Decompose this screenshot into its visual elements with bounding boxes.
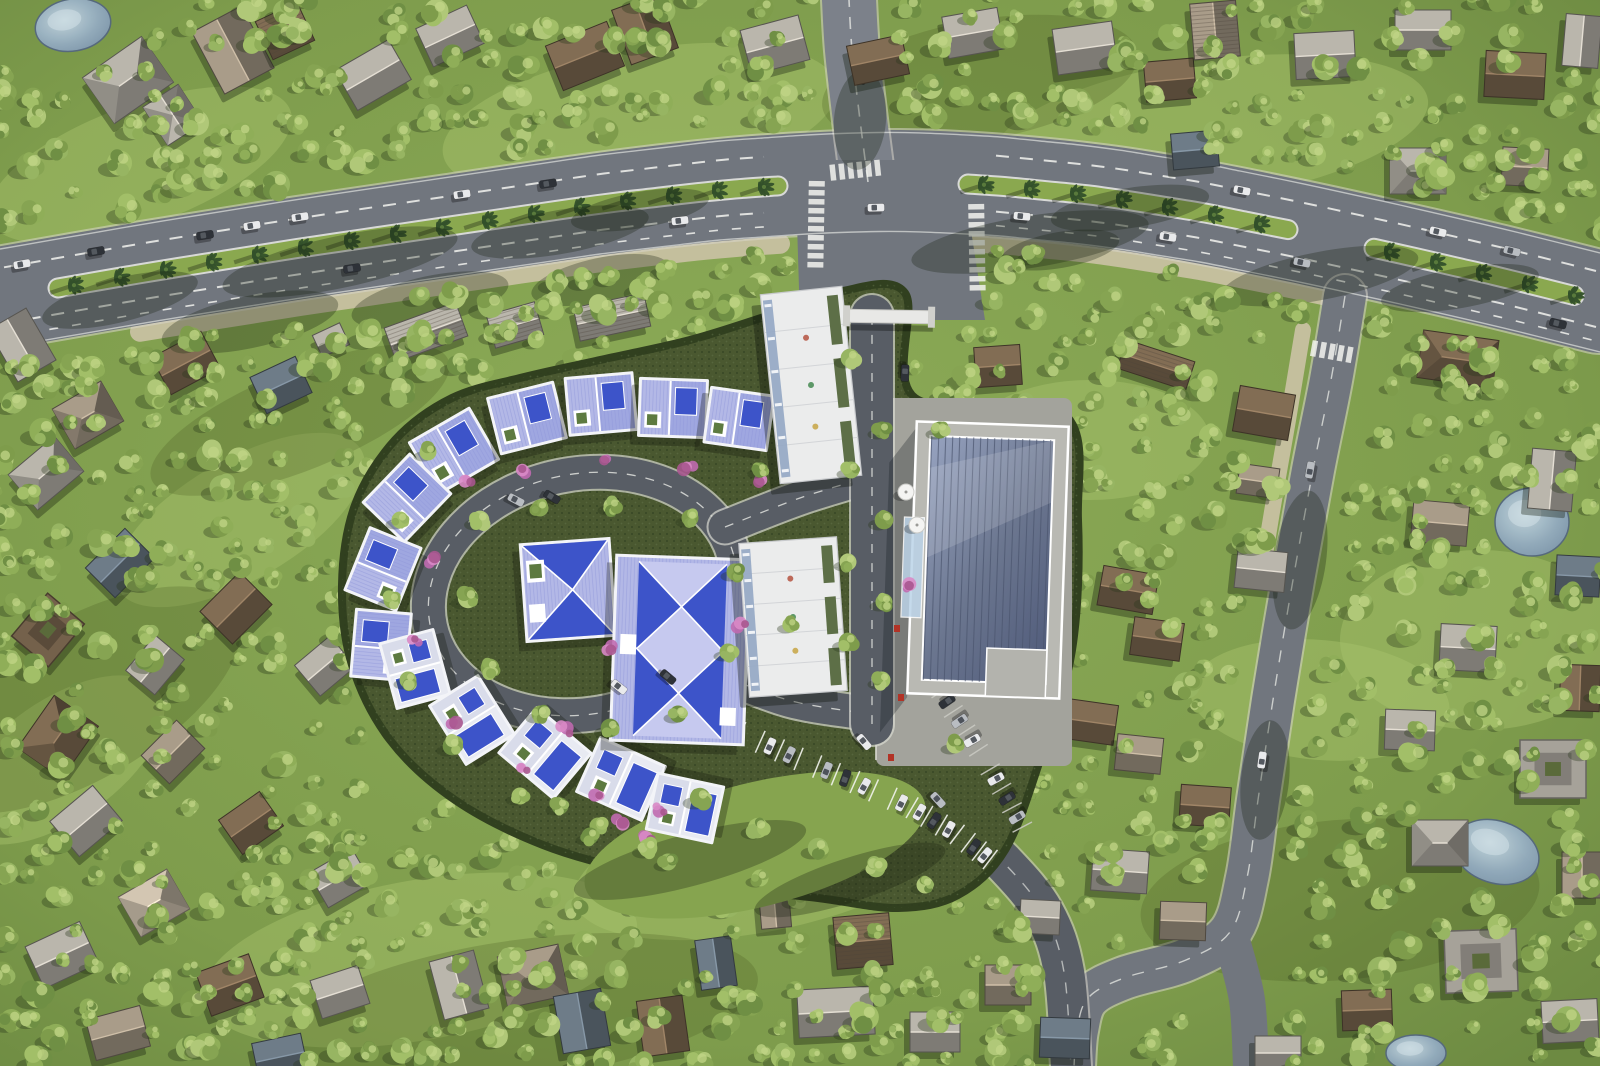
tree-highlight [32,90,40,98]
tree-highlight [963,388,971,396]
tree-highlight [240,559,249,568]
tree-canopy [1221,480,1230,489]
tree-canopy [1477,362,1490,375]
tree-highlight [1015,12,1020,17]
tree-highlight [1212,505,1223,516]
tree-canopy [35,610,46,621]
tree-highlight [1495,175,1503,183]
tree-highlight [74,187,79,192]
tree-highlight [12,394,21,403]
tree-highlight [336,69,344,77]
tree-highlight [1141,417,1147,423]
tree-canopy [447,55,460,68]
tree-highlight [491,51,498,58]
car-windshield [200,232,206,238]
tree-highlight [304,506,314,516]
car-windshield [247,223,253,229]
tree-highlight [535,334,542,341]
tree-canopy [208,41,217,50]
tree-highlight [1092,444,1099,451]
tree-canopy [899,53,907,61]
tree-canopy [1450,485,1455,490]
tree-highlight [145,571,154,580]
crosswalk-stripe [807,262,823,268]
tree-canopy [199,424,206,431]
tree-canopy [563,27,573,37]
tree-canopy [1228,595,1237,604]
tree-highlight [41,421,52,432]
tree-highlight [98,471,104,477]
tree-canopy [651,302,668,319]
tree-canopy [1438,26,1452,40]
tree-highlight [6,560,13,567]
tree-canopy [570,116,581,127]
tree-canopy [132,128,143,139]
tree-highlight [1202,80,1209,87]
tree-highlight [755,249,762,256]
tree-highlight [607,270,614,277]
tree-highlight [1511,127,1518,134]
tree-highlight [1185,675,1196,686]
tree-highlight [1382,116,1389,123]
house [1153,901,1207,948]
tree-canopy [1060,119,1067,126]
tree-highlight [1419,516,1425,522]
tree-highlight [1257,51,1263,57]
tree-canopy [1194,81,1202,89]
tree-highlight [216,38,222,44]
tree-canopy [1582,642,1594,654]
tree-highlight [176,99,182,105]
tree-canopy [1411,341,1421,351]
tree-highlight [722,264,729,271]
car-windshield [1259,759,1265,765]
tree-canopy [80,361,90,371]
tree-canopy [126,212,137,223]
car-windshield [871,205,877,211]
tree-canopy [1113,115,1125,127]
tree-highlight [1359,596,1370,607]
tree-highlight [729,297,740,308]
tree-highlight [62,605,67,610]
tree-highlight [435,2,445,12]
tree-highlight [1033,247,1041,255]
tree-highlight [277,483,286,492]
tree-canopy [1215,296,1231,312]
tree-canopy [33,382,43,392]
tree-highlight [1451,26,1461,36]
tree-highlight [157,117,165,125]
tree-canopy [146,117,160,131]
tree-highlight [1534,412,1542,420]
tree-highlight [609,89,617,97]
tree-canopy [1091,126,1100,135]
tree-canopy [1144,700,1152,708]
tree-highlight [642,110,647,115]
crosswalk-stripe [808,217,824,223]
tree-highlight [485,30,490,35]
tree-canopy [211,581,220,590]
tree-highlight [702,290,711,299]
tree-highlight [241,125,250,134]
tree-highlight [730,57,736,63]
tree-highlight [573,351,582,360]
tree-highlight [1075,1,1082,8]
tree-highlight [72,359,81,368]
tree-highlight [1164,548,1174,558]
tree-canopy [910,368,918,376]
tree-canopy [636,113,643,120]
tree-canopy [172,458,183,469]
crosswalk-stripe [970,285,986,291]
tree-highlight [1200,442,1207,449]
tree-canopy [1204,45,1212,53]
tree-canopy [1437,667,1448,678]
tree-canopy [68,188,74,194]
tree-canopy [1479,575,1489,585]
tree-canopy [1135,326,1147,338]
tree-highlight [247,181,254,188]
tree-highlight [274,632,284,642]
tree-canopy [958,64,964,70]
house [1225,384,1295,447]
tree-canopy [275,340,282,347]
tree-highlight [1497,720,1502,725]
tree-highlight [929,79,938,88]
tree-highlight [1567,474,1576,483]
tree-highlight [181,174,192,185]
crosswalk-stripe [968,204,984,210]
tree-highlight [1587,183,1593,189]
tree-highlight [1075,278,1081,284]
tree-canopy [25,165,39,179]
crosswalk-stripe [809,190,825,196]
tree-highlight [1143,317,1153,327]
tree-highlight [730,30,737,37]
tree-highlight [1224,289,1234,299]
tree-highlight [1380,317,1389,326]
tree-highlight [1123,576,1130,583]
tree-highlight [1494,660,1503,669]
tree-highlight [1232,102,1237,107]
tree-highlight [944,386,952,394]
tree-highlight [1274,479,1284,489]
tree-highlight [1416,532,1423,539]
roof-slope [1294,30,1355,56]
tree-highlight [417,289,425,297]
tree-canopy [749,92,758,101]
tree-canopy [146,416,154,424]
tree-highlight [1564,431,1569,436]
tree-highlight [1442,458,1449,465]
courtyard [1545,762,1561,776]
tree-canopy [1567,481,1577,491]
tree-canopy [783,267,791,275]
tree-highlight [1437,166,1448,177]
tree-canopy [195,393,204,402]
tree-canopy [1448,716,1454,722]
tree-highlight [1483,542,1489,548]
tree-highlight [205,419,211,425]
tree-highlight [1560,690,1570,700]
tree-highlight [1316,698,1324,706]
tree-canopy [1474,505,1481,512]
tree-highlight [298,22,308,32]
tree-canopy [1068,7,1077,16]
tree-canopy [1405,6,1413,14]
tree-highlight [1417,479,1427,489]
tree-highlight [1209,427,1218,436]
tree-canopy [1565,360,1575,370]
tree-canopy [396,150,405,159]
tree-canopy [47,458,58,469]
tree-canopy [562,350,575,363]
tree-highlight [104,66,110,72]
tree-highlight [0,86,11,97]
tree-canopy [339,693,351,705]
tree-canopy [1261,156,1270,165]
tree-highlight [238,450,248,460]
palm-crown [1074,192,1078,196]
tree-canopy [1162,622,1170,630]
tree-highlight [516,88,526,98]
tree-highlight [148,505,153,510]
tree-canopy [1137,424,1143,430]
tree-highlight [1354,541,1359,546]
car-windshield [675,218,681,224]
tree-canopy [274,509,280,515]
tree-highlight [132,508,138,514]
tree-highlight [451,47,460,56]
tree-highlight [1144,440,1150,446]
tree-highlight [224,700,229,705]
tree-highlight [1324,60,1333,69]
tree-canopy [694,298,704,308]
tree-highlight [578,95,587,104]
tree-highlight [453,113,460,120]
tree-highlight [1541,358,1547,364]
tree-highlight [35,109,43,117]
tree-highlight [295,117,303,125]
tree-highlight [1563,95,1573,105]
car-windshield [457,191,463,197]
tree-highlight [272,571,279,578]
tree [1446,93,1466,114]
tree-highlight [572,26,580,34]
tree-highlight [1530,140,1541,151]
palm-crown [1258,222,1262,226]
roof-slope [974,344,1021,367]
tree-highlight [1570,381,1576,387]
tree-highlight [28,356,37,365]
tree-canopy [487,59,496,68]
tree [203,569,225,591]
tree-canopy [1431,142,1440,151]
tree-canopy [1470,716,1483,729]
tree-canopy [1510,35,1521,46]
tree-highlight [1453,420,1460,427]
tree-highlight [1386,537,1394,545]
tree-highlight [445,330,452,337]
tree-canopy [240,150,250,160]
tree-canopy [1137,123,1148,134]
tree-canopy [1486,176,1495,185]
tree-highlight [1516,680,1523,687]
tree-highlight [1231,5,1236,10]
tree-highlight [1454,378,1464,388]
tree-canopy [1466,626,1484,644]
tree-highlight [1484,351,1495,362]
tree-highlight [1257,531,1268,542]
tree-highlight [1274,293,1281,300]
tree-highlight [1228,474,1236,482]
tree-canopy [1587,120,1597,130]
tree-highlight [33,204,42,213]
tree-canopy [1309,5,1317,13]
tree-highlight [1175,516,1183,524]
tree-highlight [101,533,112,544]
tree-canopy [35,558,46,569]
tree-highlight [1406,96,1411,101]
tree-canopy [1571,441,1585,455]
tree-canopy [4,748,14,758]
tree-highlight [1226,59,1235,68]
aerial-site-render [0,0,1600,1066]
tree-highlight [45,559,54,568]
tree-canopy [1021,310,1035,324]
tree-highlight [429,79,438,88]
tree-highlight [1081,602,1086,607]
house [1033,1017,1091,1066]
tree-highlight [1540,622,1547,629]
tree-canopy [119,456,133,470]
tree-canopy [1510,640,1518,648]
tree-highlight [1237,454,1246,463]
tree-highlight [70,710,80,720]
aerial-development-rendering [0,0,1600,1066]
tree [195,387,218,407]
tree-canopy [1401,362,1416,377]
tree-canopy [347,384,356,393]
tree-highlight [1405,567,1416,578]
tree-canopy [211,486,225,500]
tree-highlight [1590,501,1596,507]
palm-crown [1434,260,1438,264]
tree-highlight [1528,468,1536,476]
tree-highlight [1405,1,1411,7]
tree-highlight [1183,476,1189,482]
tree-highlight [41,600,51,610]
tree-highlight [210,149,218,157]
tree-highlight [1228,667,1235,674]
tree-highlight [1570,586,1580,596]
tree-highlight [1574,153,1582,161]
tree-canopy [1291,310,1302,321]
tree-highlight [1455,96,1463,104]
tree-highlight [27,156,37,166]
tree-canopy [910,101,922,113]
tree-highlight [204,389,212,397]
tree-highlight [543,19,552,28]
tree-highlight [1079,654,1085,660]
tree-highlight [84,377,93,386]
tree-canopy [1355,69,1367,81]
tree-canopy [1410,538,1421,549]
tree-canopy [1048,366,1059,377]
tree-canopy [538,116,546,124]
tree-highlight [1357,59,1367,69]
tree-highlight [1203,662,1210,669]
tree-canopy [327,478,338,489]
tree-highlight [1148,593,1155,600]
tree-canopy [1247,531,1258,542]
tree-canopy [1134,60,1144,70]
courtyard [1472,953,1490,968]
tree-highlight [1272,113,1278,119]
tree-highlight [1152,573,1158,579]
tree-highlight [280,506,285,511]
tree-highlight [149,352,159,362]
tree-highlight [1558,658,1568,668]
tree-canopy [351,430,362,441]
tree-highlight [1391,380,1397,386]
tree-canopy [1398,578,1414,594]
tree-canopy [1267,294,1274,301]
tree-canopy [964,333,973,342]
tree-canopy [1396,623,1408,635]
tree-highlight [355,380,362,387]
palm-crown [256,253,260,257]
tree-canopy [996,251,1003,258]
tree-canopy [95,478,101,484]
tree-highlight [1434,542,1445,553]
tree-canopy [750,254,762,266]
tree-highlight [547,141,553,147]
car-windshield [1237,187,1243,194]
tree-highlight [394,7,402,15]
tree-highlight [1077,91,1088,102]
tree-highlight [714,81,725,92]
tree-highlight [964,64,969,69]
tree-highlight [575,302,580,307]
tree-highlight [522,58,533,69]
tree-canopy [239,186,247,194]
tree-highlight [1353,131,1359,137]
tree-highlight [99,634,110,645]
tree-highlight [1261,98,1268,105]
tree-highlight [177,684,185,692]
tree-highlight [776,111,786,121]
tree-canopy [56,608,62,614]
tree-canopy [1200,513,1216,529]
tree-highlight [1359,483,1368,492]
tree-highlight [162,149,170,157]
palm-crown [1212,213,1216,217]
tree-highlight [452,287,462,297]
tree-canopy [1348,604,1365,621]
tree-highlight [751,84,758,91]
tree-highlight [334,334,343,343]
tree-canopy [29,115,42,128]
crosswalk-stripe [808,199,824,205]
car-windshield [17,261,23,267]
tree-canopy [1516,144,1531,159]
tree-canopy [1357,688,1367,698]
tree-highlight [275,174,286,185]
tree-highlight [1407,624,1418,635]
tree-highlight [213,168,223,178]
tree-canopy [1190,378,1202,390]
